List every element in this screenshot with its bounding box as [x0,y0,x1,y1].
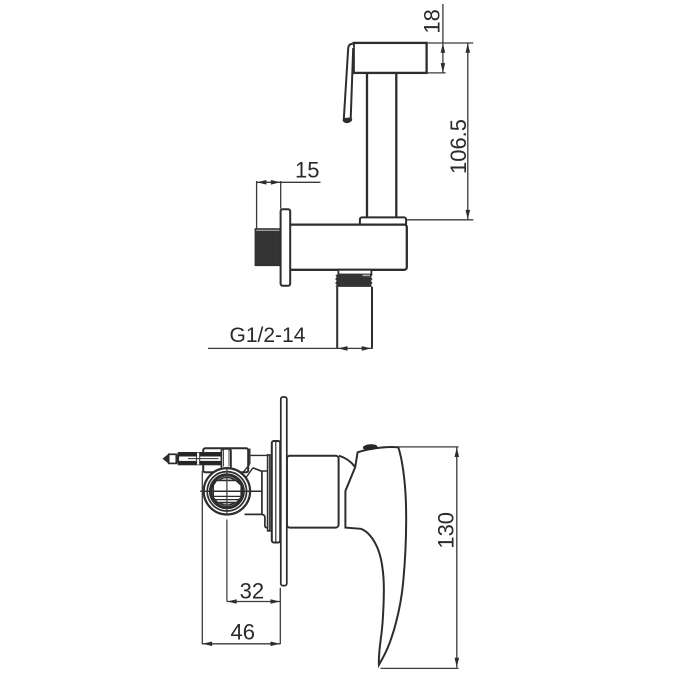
svg-text:46: 46 [230,620,254,645]
svg-text:32: 32 [240,579,264,604]
svg-text:G1/2-14: G1/2-14 [230,324,306,347]
svg-text:18: 18 [419,9,444,33]
svg-text:130: 130 [433,512,458,549]
svg-text:106.5: 106.5 [446,119,471,174]
svg-text:15: 15 [295,158,319,183]
